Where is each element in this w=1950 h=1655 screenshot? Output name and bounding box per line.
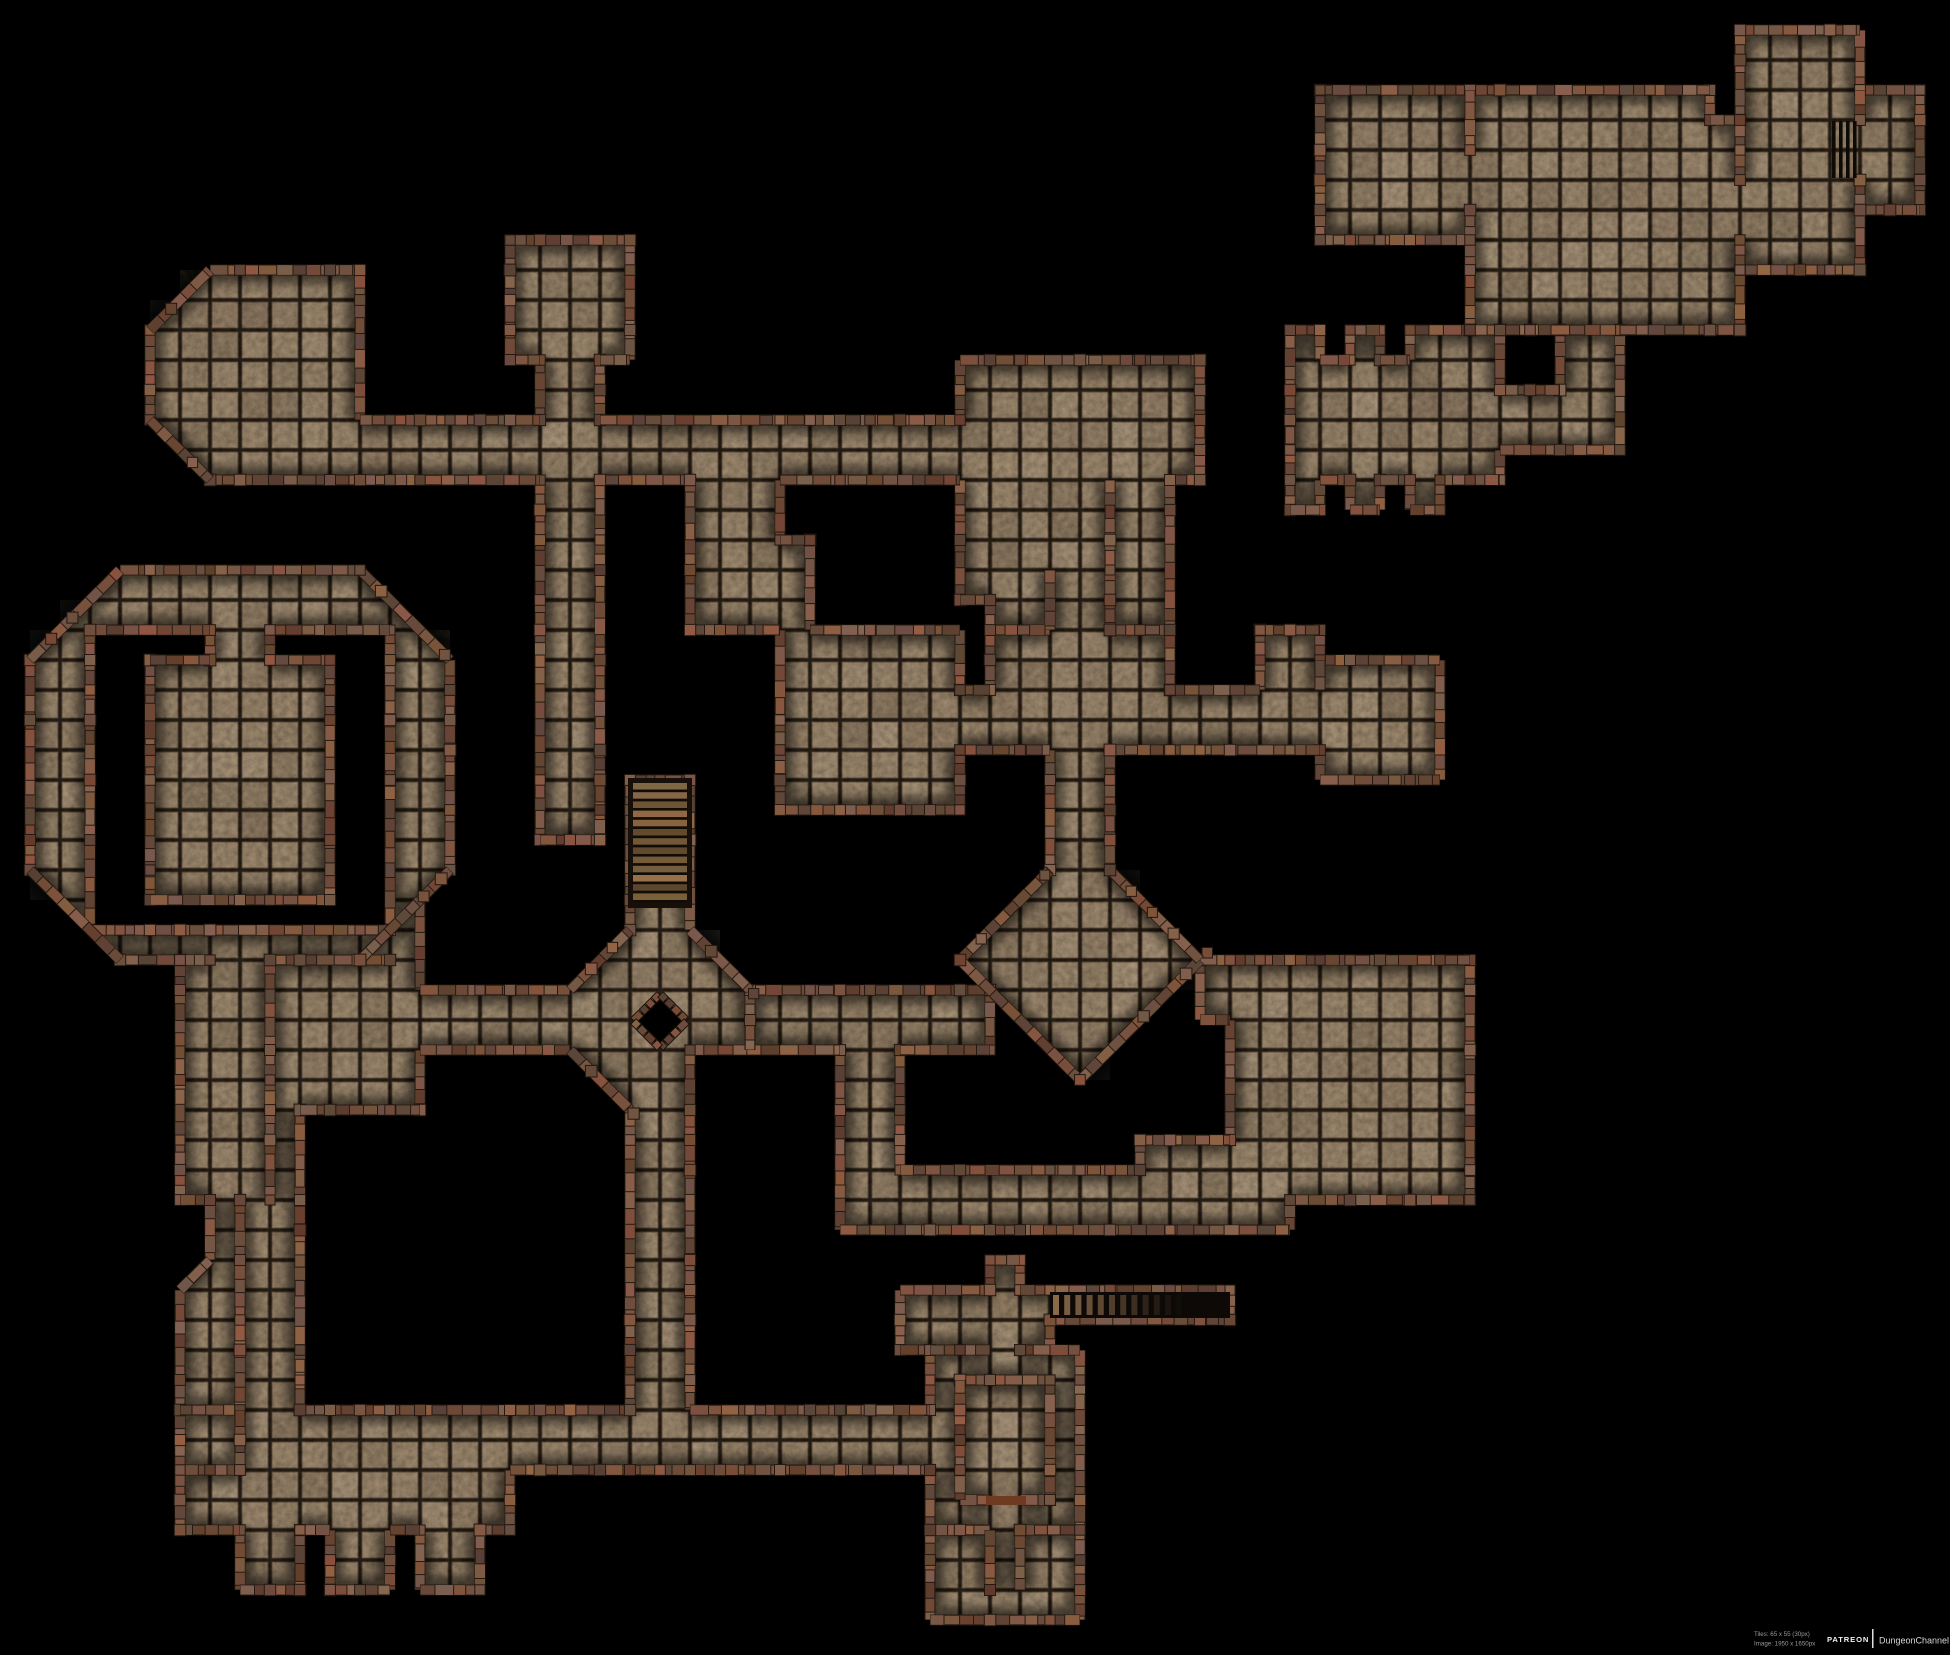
svg-text:PATREON: PATREON <box>1827 1635 1869 1644</box>
svg-text:Tiles: 65 x 55 (30px): Tiles: 65 x 55 (30px) <box>1754 1631 1810 1638</box>
svg-text:Image: 1950 x 1650px: Image: 1950 x 1650px <box>1754 1641 1816 1648</box>
svg-text:DungeonChannel: DungeonChannel <box>1879 1636 1949 1646</box>
